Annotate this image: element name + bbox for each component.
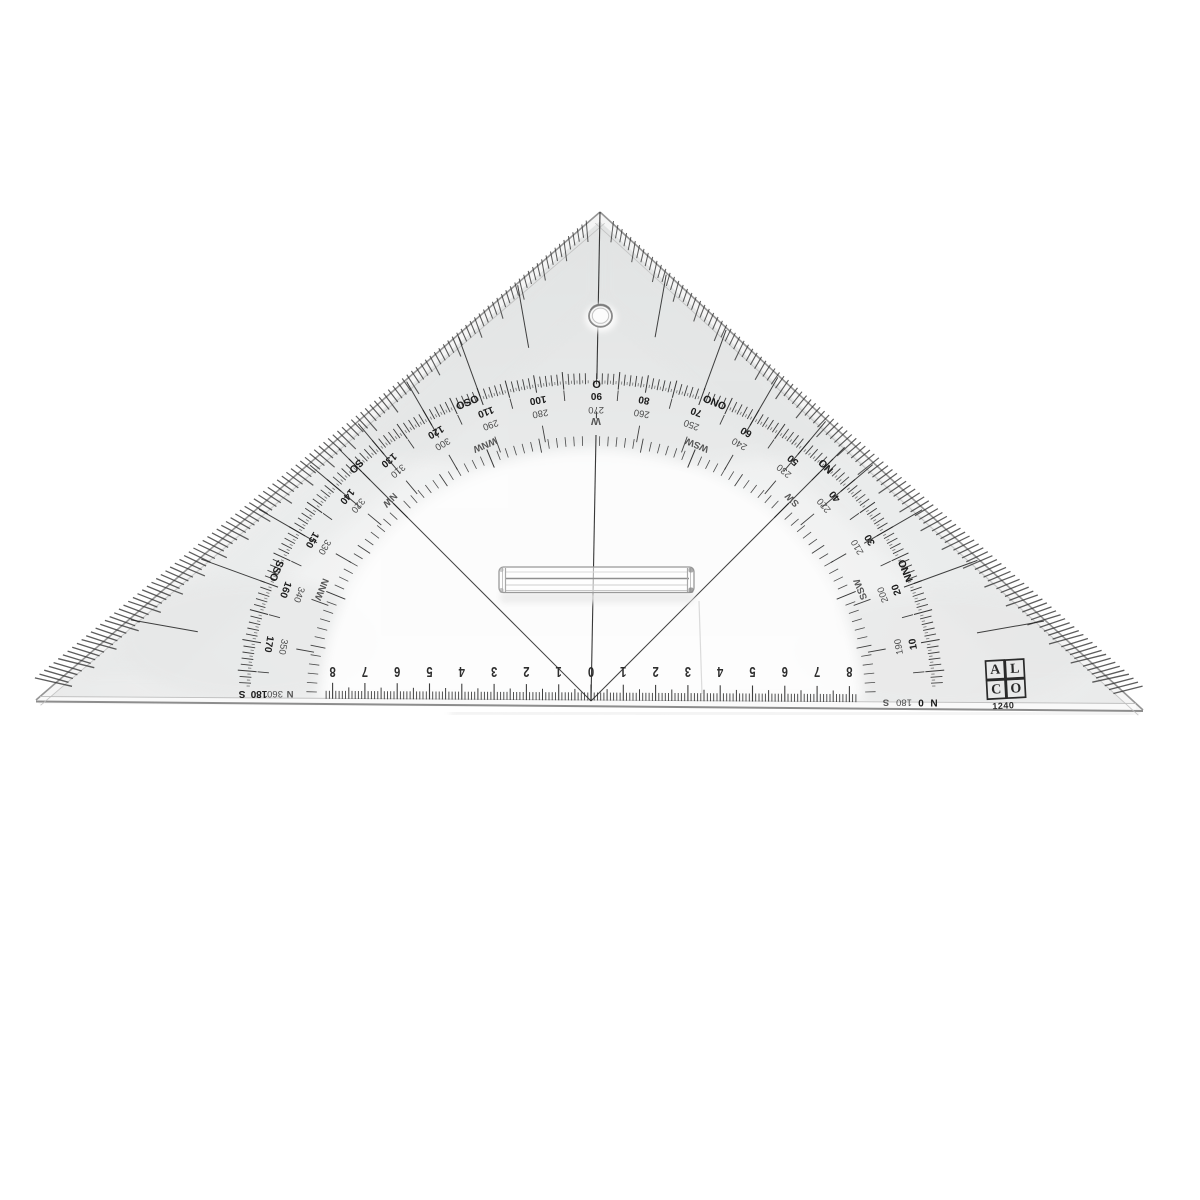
svg-text:6: 6 xyxy=(782,663,788,680)
svg-text:O: O xyxy=(1010,681,1022,697)
svg-text:4: 4 xyxy=(717,663,724,680)
svg-text:5: 5 xyxy=(749,663,755,680)
svg-text:S: S xyxy=(238,688,245,699)
svg-text:1240: 1240 xyxy=(992,700,1015,711)
svg-text:90: 90 xyxy=(590,390,602,401)
svg-text:A: A xyxy=(990,663,1002,679)
svg-text:180: 180 xyxy=(896,697,912,708)
svg-text:180: 180 xyxy=(250,688,267,699)
svg-text:1: 1 xyxy=(620,663,626,680)
svg-text:270: 270 xyxy=(588,404,604,415)
svg-text:4: 4 xyxy=(458,663,465,680)
svg-text:W: W xyxy=(591,415,601,427)
svg-text:0: 0 xyxy=(588,663,594,680)
svg-text:7: 7 xyxy=(362,663,368,680)
svg-text:C: C xyxy=(991,682,1002,698)
svg-text:0: 0 xyxy=(918,697,924,708)
svg-text:2: 2 xyxy=(652,663,658,680)
svg-text:2: 2 xyxy=(523,663,529,680)
svg-text:N: N xyxy=(286,688,293,699)
svg-text:3: 3 xyxy=(491,663,497,680)
svg-text:S: S xyxy=(883,697,889,708)
svg-text:8: 8 xyxy=(846,663,852,680)
svg-text:5: 5 xyxy=(426,663,432,680)
svg-text:3: 3 xyxy=(685,663,691,680)
svg-text:L: L xyxy=(1010,662,1020,677)
svg-text:7: 7 xyxy=(814,663,820,680)
svg-text:360: 360 xyxy=(267,688,283,699)
svg-text:O: O xyxy=(592,377,601,389)
svg-text:N: N xyxy=(930,697,937,708)
svg-text:6: 6 xyxy=(394,663,400,680)
svg-text:8: 8 xyxy=(330,663,336,680)
svg-text:1: 1 xyxy=(556,663,562,680)
